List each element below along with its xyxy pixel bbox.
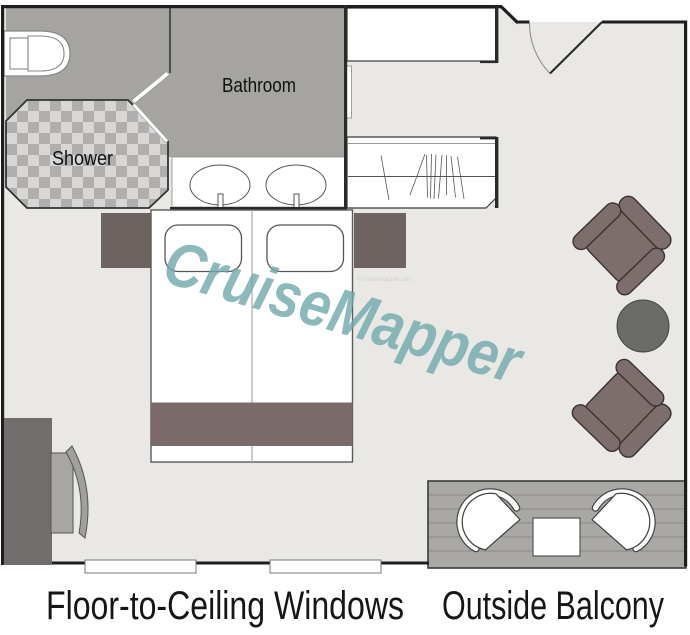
svg-text:Shower: Shower	[52, 147, 113, 170]
svg-text:Outside Balcony: Outside Balcony	[442, 584, 664, 628]
svg-text:Bathroom: Bathroom	[222, 74, 296, 97]
svg-text:Floor-to-Ceiling Windows: Floor-to-Ceiling Windows	[46, 584, 404, 628]
